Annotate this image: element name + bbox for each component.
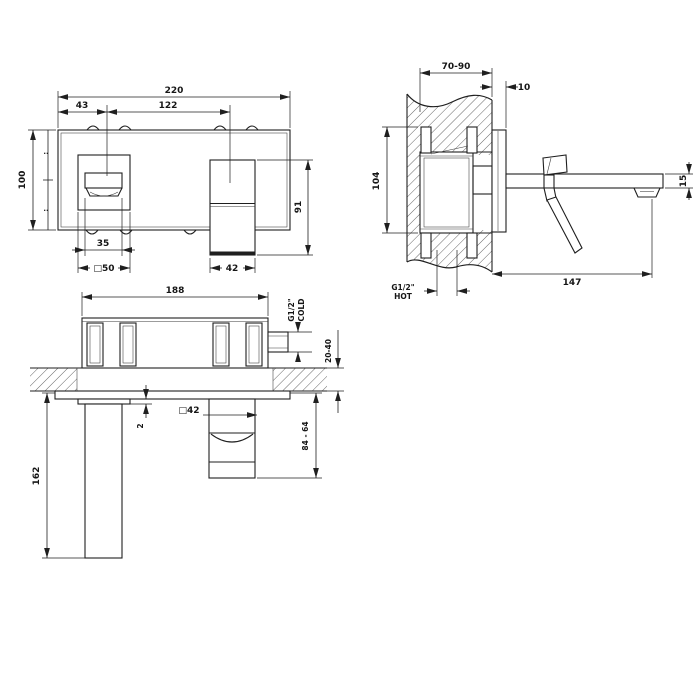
- bottom-lever: [85, 404, 122, 558]
- dim-total-width: 220: [165, 86, 184, 96]
- side-spout: [506, 174, 663, 197]
- dim-spout-drop: 84 - 64: [301, 421, 310, 450]
- dim-body-height: 104: [372, 172, 382, 191]
- front-view: 220 43 122 100 ·· ·· 91: [18, 86, 313, 274]
- dim-finished-wall: 20-40: [324, 339, 333, 363]
- dim-spout-projection: 147: [563, 278, 582, 288]
- bottom-view: 188 G1/2" COLD 20-40 2 □42: [30, 286, 344, 558]
- dim-spout-width: 42: [226, 264, 239, 274]
- dim-spout-height: 91: [294, 201, 304, 214]
- front-spout: [210, 160, 255, 255]
- bottom-wall: [30, 368, 327, 391]
- dim-recess-depth: 70-90: [442, 62, 471, 72]
- dim-lever-length: 162: [32, 467, 42, 486]
- bottom-body: [82, 318, 288, 368]
- front-dimensions: 220 43 122 100 ·· ·· 91: [18, 86, 313, 274]
- dim-spout-thickness: 15: [679, 175, 689, 188]
- side-view: 70-90 10 104 15 147 G1/: [372, 62, 693, 301]
- half-tick-upper: ··: [43, 150, 48, 158]
- dim-handle-offset: 43: [76, 101, 89, 111]
- dim-plate-height: 100: [18, 171, 28, 190]
- cold-inlet-size: G1/2": [287, 298, 296, 321]
- hot-inlet-size: G1/2": [391, 283, 414, 292]
- technical-drawing-page: 220 43 122 100 ·· ·· 91: [0, 0, 700, 700]
- half-tick-lower: ··: [43, 207, 48, 215]
- hot-inlet-label: HOT: [394, 292, 413, 301]
- cold-inlet-label: COLD: [297, 299, 306, 322]
- dim-center-distance: 122: [159, 101, 178, 111]
- dim-handle-width: 35: [97, 239, 110, 249]
- dim-body-width: 188: [166, 286, 185, 296]
- dim-plate-projection: 10: [518, 83, 531, 93]
- side-plate: [492, 130, 506, 232]
- faucet-installation-drawing: 220 43 122 100 ·· ·· 91: [0, 0, 700, 700]
- dim-handle-plate: □50: [93, 264, 114, 274]
- cold-inlet-pipe: [268, 332, 288, 352]
- dim-spout-section: □42: [178, 406, 199, 416]
- side-handle: [543, 155, 582, 253]
- bottom-spout: [209, 399, 255, 478]
- dim-plate-gap: 2: [136, 423, 145, 428]
- bottom-fixture: [55, 391, 290, 558]
